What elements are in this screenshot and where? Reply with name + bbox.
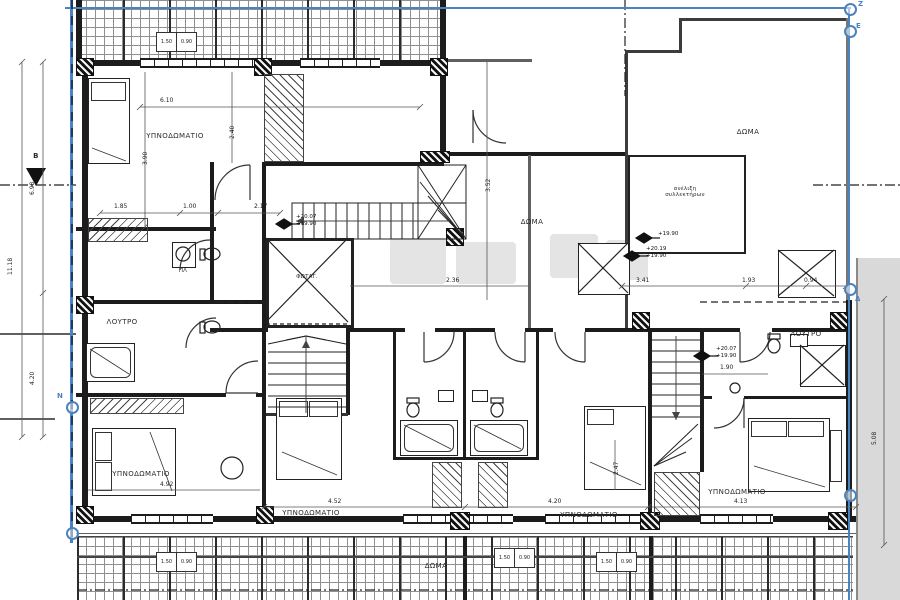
shaft-right-cross	[778, 250, 834, 296]
elevation-lower: +19.90	[716, 353, 736, 359]
room-label-bedroom-bmr: ΥΠΝΟΔΩΜΑΤΙΟ	[534, 511, 644, 519]
elevation-upper: +20.07	[716, 346, 736, 352]
washing-machine-drum	[176, 247, 190, 261]
dimension-label: 4.92	[160, 481, 173, 488]
light-well-cross	[266, 238, 348, 322]
boundary-letter-z: Z	[858, 0, 863, 8]
elevation-upper: +20.07	[296, 214, 316, 220]
dimension-label: 3.52	[485, 179, 492, 192]
room-label-bedroom-bl: ΥΠΝΟΔΩΜΑΤΙΟ	[86, 470, 196, 478]
boundary-vertex	[66, 527, 79, 540]
dimension-label: 1.93	[742, 277, 755, 284]
linework-overlay	[0, 0, 900, 600]
elevation-label: +19.90	[658, 231, 678, 238]
plot-boundary-top	[65, 7, 851, 9]
label-washing-machine: ΠΛ	[172, 268, 194, 274]
room-label-bedroom-tl: ΥΠΝΟΔΩΜΑΤΙΟ	[120, 132, 230, 140]
dimension-label: 3.90	[142, 152, 149, 165]
elevation-lower: +19.90	[296, 221, 316, 227]
dimension-label: 11.18	[7, 258, 14, 275]
dimension-label: 2.36	[446, 277, 459, 284]
boundary-letter-n: N	[57, 392, 63, 400]
room-label-terrace-center: ΔΩΜΑ	[502, 218, 562, 226]
nightstand	[221, 457, 243, 479]
room-label-bedroom-bc: ΥΠΝΟΔΩΜΑΤΙΟ	[256, 509, 366, 517]
section-letter: B	[24, 152, 48, 160]
dimension-label: 4.20	[29, 372, 36, 385]
floor-plan-canvas: 1.500.90 1.500.90 1.500.90 1.500.90	[0, 0, 900, 600]
dimension-label: 4.20	[548, 498, 561, 505]
boundary-vertex	[844, 489, 857, 502]
boundary-letter-delta: Δ	[855, 295, 860, 303]
dimension-label: 1.85	[114, 203, 127, 210]
elevation-label: +20.07 +19.90	[296, 214, 316, 228]
label-light-well: ΦΩΤΑΓ.	[286, 274, 328, 280]
dimension-label: 0.94	[804, 277, 817, 284]
dimension-label: 1.00	[183, 203, 196, 210]
elevation-label: +20.19 +19.90	[646, 246, 666, 260]
room-label-terrace-tr: ΔΩΜΑ	[718, 128, 778, 136]
fold-lines	[90, 148, 825, 491]
dimension-label: 2.47	[613, 462, 620, 475]
boundary-letter-e: E	[856, 22, 861, 30]
plot-boundary-left-axis	[71, 0, 73, 543]
dimension-label: 1.90	[720, 364, 733, 371]
label-collector: ανέλιξη συλλεκτήρων	[630, 186, 740, 198]
dimension-label: 5.08	[871, 432, 878, 445]
dimension-label: 4.52	[328, 498, 341, 505]
room-label-bedroom-br: ΥΠΝΟΔΩΜΑΤΙΟ	[682, 488, 792, 496]
elevation-upper: +20.19	[646, 246, 666, 252]
elevation-lower: +19.90	[646, 253, 666, 259]
shower-cross	[800, 345, 844, 385]
room-label-bath-right: ΛΟΥΤΡΟ	[776, 330, 836, 338]
dimension-label: 4.13	[734, 498, 747, 505]
shaft-center-cross	[578, 243, 628, 293]
dimension-label: 6.98	[29, 182, 36, 195]
dimension-label: 6.10	[160, 97, 173, 104]
elevation-label: +20.07 +19.90	[716, 346, 736, 360]
stair-right	[652, 336, 700, 466]
floor-drain	[730, 383, 740, 393]
stair-top	[292, 165, 466, 239]
dimension-label: 2.17	[254, 203, 267, 210]
dash-dot-lines	[0, 0, 900, 590]
door-arcs	[180, 110, 770, 428]
collector-line2: συλλεκτήρων	[665, 192, 705, 198]
stair-mid-left	[268, 336, 346, 413]
elevation-markers	[276, 219, 718, 361]
dimension-label: 3.41	[636, 277, 649, 284]
boundary-vertex	[844, 3, 857, 16]
room-label-bath-left: ΛΟΥΤΡΟ	[92, 318, 152, 326]
boundary-vertex	[66, 401, 79, 414]
dimension-label: 2.40	[229, 126, 236, 139]
room-label-terrace-bottom: ΔΩΜΑ	[406, 562, 466, 570]
plot-boundary-right	[848, 7, 850, 600]
elevation-single: +19.90	[658, 231, 678, 237]
